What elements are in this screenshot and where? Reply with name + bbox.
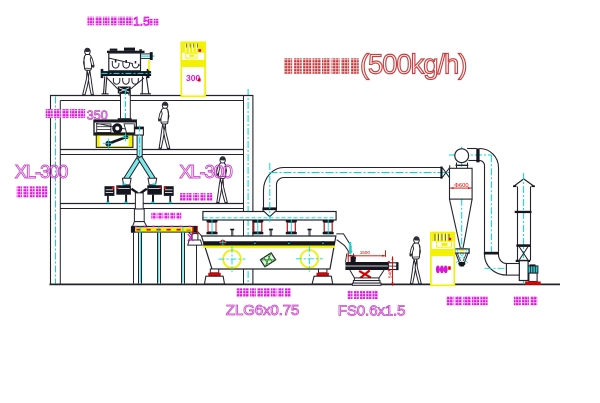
svg-text:(500kg/h): (500kg/h) bbox=[360, 49, 466, 80]
svg-text:FS0.6x1.5: FS0.6x1.5 bbox=[338, 303, 405, 320]
svg-text:540: 540 bbox=[387, 270, 392, 278]
svg-text:XL-300: XL-300 bbox=[15, 161, 68, 182]
svg-text:350: 350 bbox=[87, 108, 108, 122]
svg-text:1500: 1500 bbox=[360, 250, 371, 255]
svg-text:ZLG6x0.75: ZLG6x0.75 bbox=[226, 302, 299, 319]
svg-text:XL-300: XL-300 bbox=[179, 161, 232, 182]
svg-text:1.5: 1.5 bbox=[133, 15, 150, 29]
